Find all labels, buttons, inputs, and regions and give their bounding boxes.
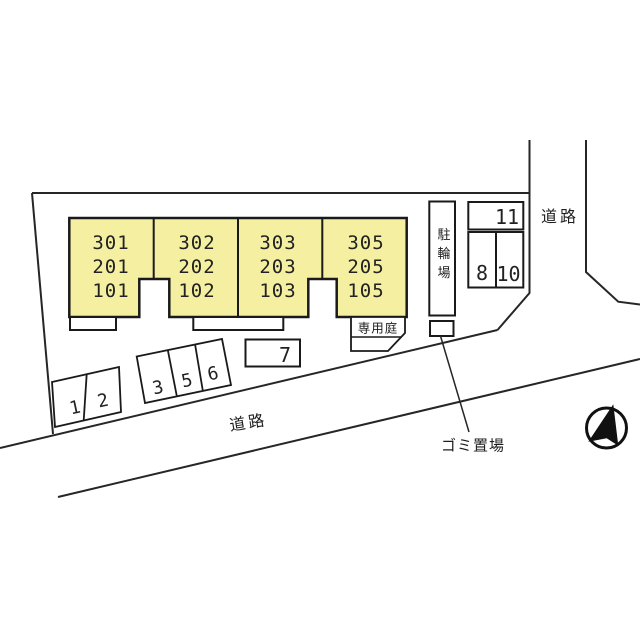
private-garden-label: 専用庭 [358,318,399,337]
room-number: 103 [236,279,320,303]
site-plan-canvas [0,0,640,640]
room-number: 302 [155,231,239,255]
garbage-area-label: ゴミ置場 [441,435,505,456]
bicycle-parking-label: 駐輪場 [433,228,452,285]
parking-box-7 [246,340,301,367]
site-plan: 301 201 101 302 202 102 303 203 103 305 … [0,0,640,640]
parking-label-8: 8 [476,261,488,285]
unit-1-rooms: 301 201 101 [69,231,153,303]
road-label-right: 道路 [541,203,579,227]
room-number: 102 [155,279,239,303]
unit-2-rooms: 302 202 102 [155,231,239,303]
parking-label-7: 7 [279,343,291,367]
unit-4-rooms: 305 205 105 [324,231,408,303]
room-number: 101 [69,279,153,303]
property-boundary-left [32,193,53,434]
room-number: 301 [69,231,153,255]
room-number: 205 [324,255,408,279]
room-number: 202 [155,255,239,279]
unit-3-rooms: 303 203 103 [236,231,320,303]
room-number: 305 [324,231,408,255]
porch-unit1 [70,317,116,330]
parking-label-10: 10 [496,262,520,286]
right-road-east-edge [586,140,640,305]
north-arrow-icon [587,404,627,448]
garbage-leader-line [441,336,470,432]
room-number: 105 [324,279,408,303]
garbage-area-box [430,321,454,336]
parking-label-11: 11 [495,205,519,229]
room-number: 303 [236,231,320,255]
room-number: 203 [236,255,320,279]
porch-units2-3 [193,317,283,330]
room-number: 201 [69,255,153,279]
